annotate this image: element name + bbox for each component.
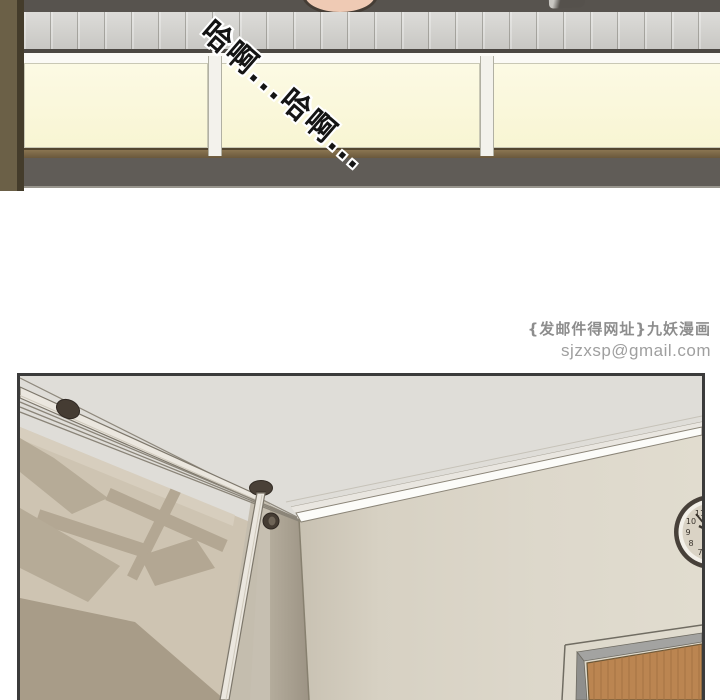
clock-number: 8 [688,539,693,548]
watermark-publisher: {发邮件得网址}九妖漫画 [528,321,711,338]
counter-top-edge [24,53,720,63]
tile-backsplash [24,12,720,53]
comic-panel-top: 哈啊...哈啊... [0,0,720,191]
clock-number: 10 [686,517,696,526]
left-wall-edge [17,0,24,191]
clock-number: 7 [697,548,702,557]
small-object-on-counter [549,0,585,9]
left-wall-strip [0,0,17,191]
comic-panel-bottom: 11 10 9 8 7 [17,373,705,700]
cabinet-row [24,63,720,148]
comic-page: { "comic": { "top_panel": { "speech_bubb… [0,0,720,700]
floor-shadow-band [24,158,720,188]
room-scene: 11 10 9 8 7 [20,376,702,700]
clock-number: 9 [685,528,690,537]
cabinet-door [492,63,720,148]
cabinet-door [24,63,208,148]
cabinet-divider [480,56,494,156]
watermark-email: sjzxsp@gmail.com [528,341,711,361]
cabinet-divider [208,56,222,156]
watermark: {发邮件得网址}九妖漫画 sjzxsp@gmail.com [528,321,711,361]
